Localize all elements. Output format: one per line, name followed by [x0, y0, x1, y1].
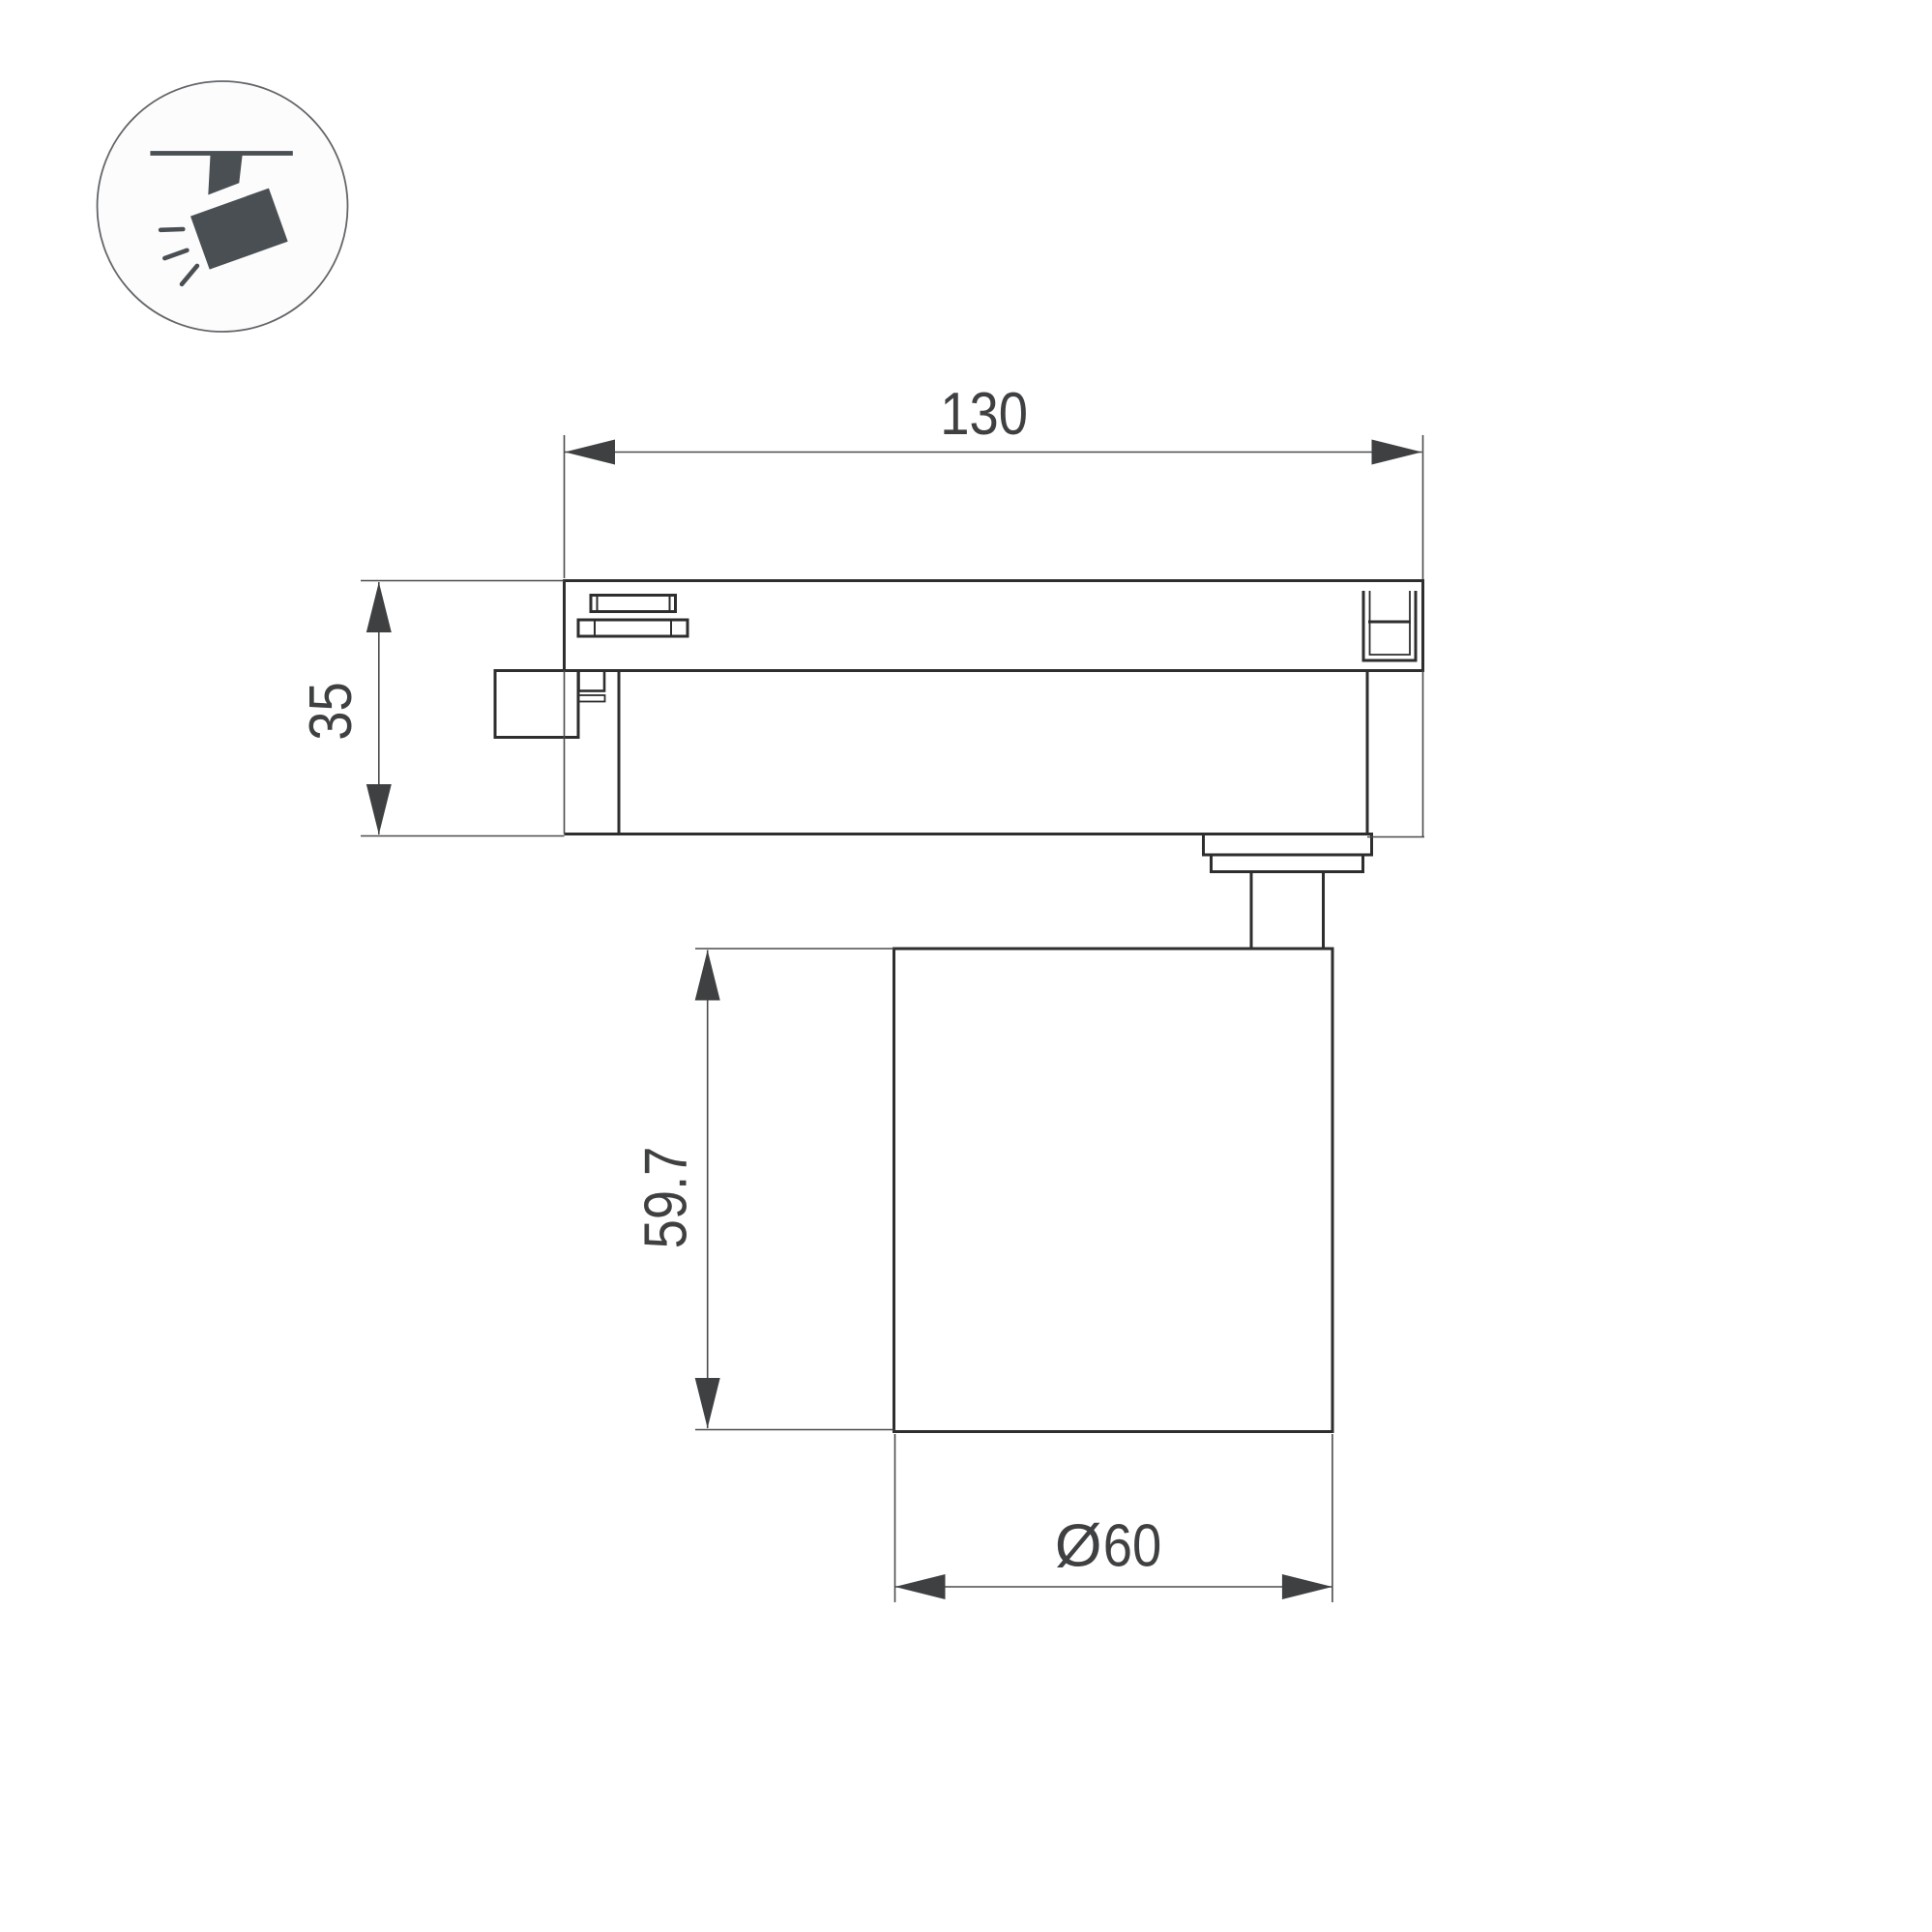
svg-text:35: 35 [298, 682, 365, 740]
svg-text:59.7: 59.7 [632, 1147, 699, 1249]
svg-text:Ø: Ø [1055, 1512, 1102, 1580]
svg-text:60: 60 [1103, 1512, 1161, 1579]
svg-text:130: 130 [940, 381, 1028, 448]
